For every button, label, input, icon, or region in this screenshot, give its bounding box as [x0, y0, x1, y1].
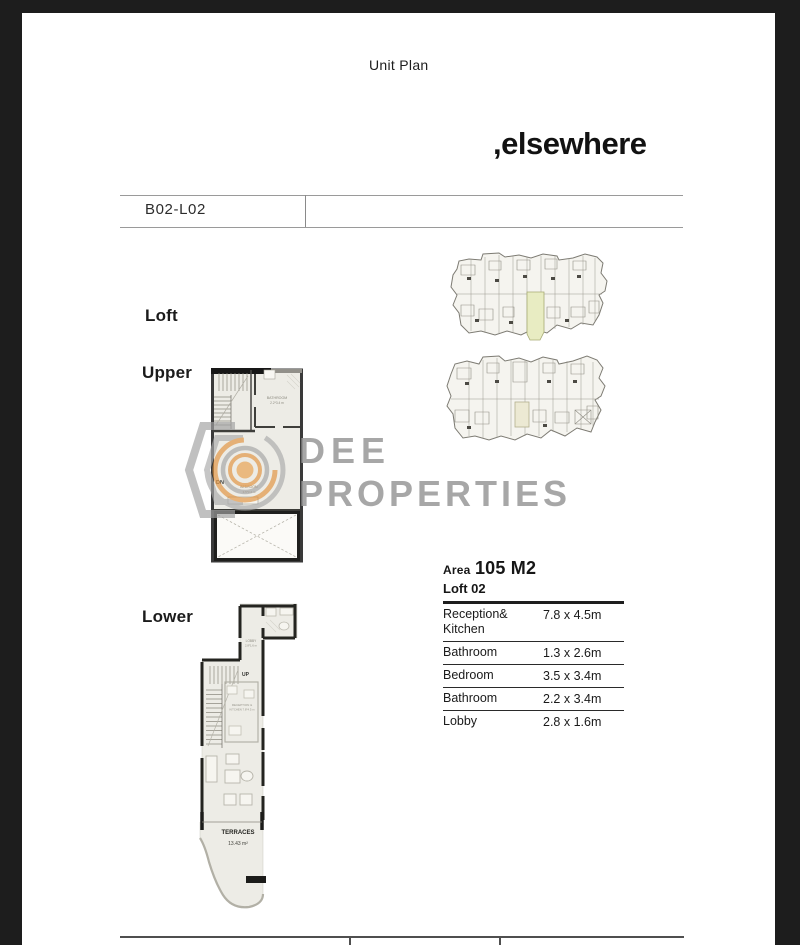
table-row: Bathroom 1.3 x 2.6m: [443, 642, 624, 665]
bathroom-dims: 2.2*3.4 m: [270, 401, 284, 405]
area-table-rows: Reception& Kitchen 7.8 x 4.5m Bathroom 1…: [443, 601, 624, 733]
header-divider: [305, 195, 306, 227]
lobby-dims: 2.8*1.6 m: [245, 644, 258, 648]
watermark-logo-icon: [183, 418, 309, 524]
watermark-text: DEE PROPERTIES: [299, 433, 571, 512]
header-rule-bottom: [120, 227, 683, 228]
watermark-line1: DEE: [299, 433, 571, 469]
lower-floor-plan: LOBBY 2.8*1.6 m UP RECEPTION & KITCHEN 7…: [196, 598, 304, 918]
reception-label-line2: KITCHEN 7.8*4.5 m: [229, 708, 255, 712]
room-name: Bathroom: [443, 691, 543, 706]
brand-wordmark: ,elsewhere: [493, 126, 647, 162]
section-label-loft: Loft: [145, 306, 178, 326]
section-label-upper: Upper: [142, 363, 192, 383]
table-row: Bathroom 2.2 x 3.4m: [443, 688, 624, 711]
area-value: 105 M2: [475, 558, 536, 578]
room-dims: 7.8 x 4.5m: [543, 607, 624, 622]
area-table-header: Area 105 M2 Loft 02: [443, 558, 624, 596]
footer-rule: [120, 936, 684, 938]
up-label: UP: [242, 672, 250, 678]
table-row: Reception& Kitchen 7.8 x 4.5m: [443, 604, 624, 642]
section-label-lower: Lower: [142, 607, 193, 627]
header-rule-top: [120, 195, 683, 196]
terrace-area: 13.43 m²: [228, 841, 248, 847]
door-notch: [264, 370, 275, 379]
room-dims: 2.8 x 1.6m: [543, 714, 624, 729]
area-unit-label: Loft 02: [443, 581, 624, 596]
room-name: Bedroom: [443, 668, 543, 683]
reception-label-line1: RECEPTION &: [232, 703, 252, 707]
footer-tick: [349, 936, 351, 945]
highlighted-unit: [527, 292, 544, 340]
bathroom-label: BATHROOM: [267, 396, 288, 400]
area-label: Area: [443, 563, 470, 577]
room-name: Bathroom: [443, 645, 543, 660]
upper-plan-top-wall: [211, 368, 271, 374]
table-row: Lobby 2.8 x 1.6m: [443, 711, 624, 733]
upper-plan-top-wall-light: [271, 369, 302, 373]
footer-tick: [499, 936, 501, 945]
document-screenshot: Unit Plan ,elsewhere B02-L02 Loft Upper …: [0, 0, 800, 945]
table-row: Bedroom 3.5 x 3.4m: [443, 665, 624, 688]
key-plan-loft-level: [447, 249, 613, 345]
room-name: Reception& Kitchen: [443, 607, 543, 637]
room-dims: 3.5 x 3.4m: [543, 668, 624, 683]
page-title: Unit Plan: [369, 57, 429, 73]
room-name: Lobby: [443, 714, 543, 729]
area-table: Area 105 M2 Loft 02 Reception& Kitchen 7…: [443, 558, 624, 733]
terrace-label: TERRACES: [221, 830, 254, 836]
room-dims: 2.2 x 3.4m: [543, 691, 624, 706]
lobby-label: LOBBY: [246, 639, 258, 643]
highlighted-unit: [515, 402, 529, 427]
watermark-line2: PROPERTIES: [299, 476, 571, 512]
unit-code: B02-L02: [145, 201, 206, 218]
room-dims: 1.3 x 2.6m: [543, 645, 624, 660]
